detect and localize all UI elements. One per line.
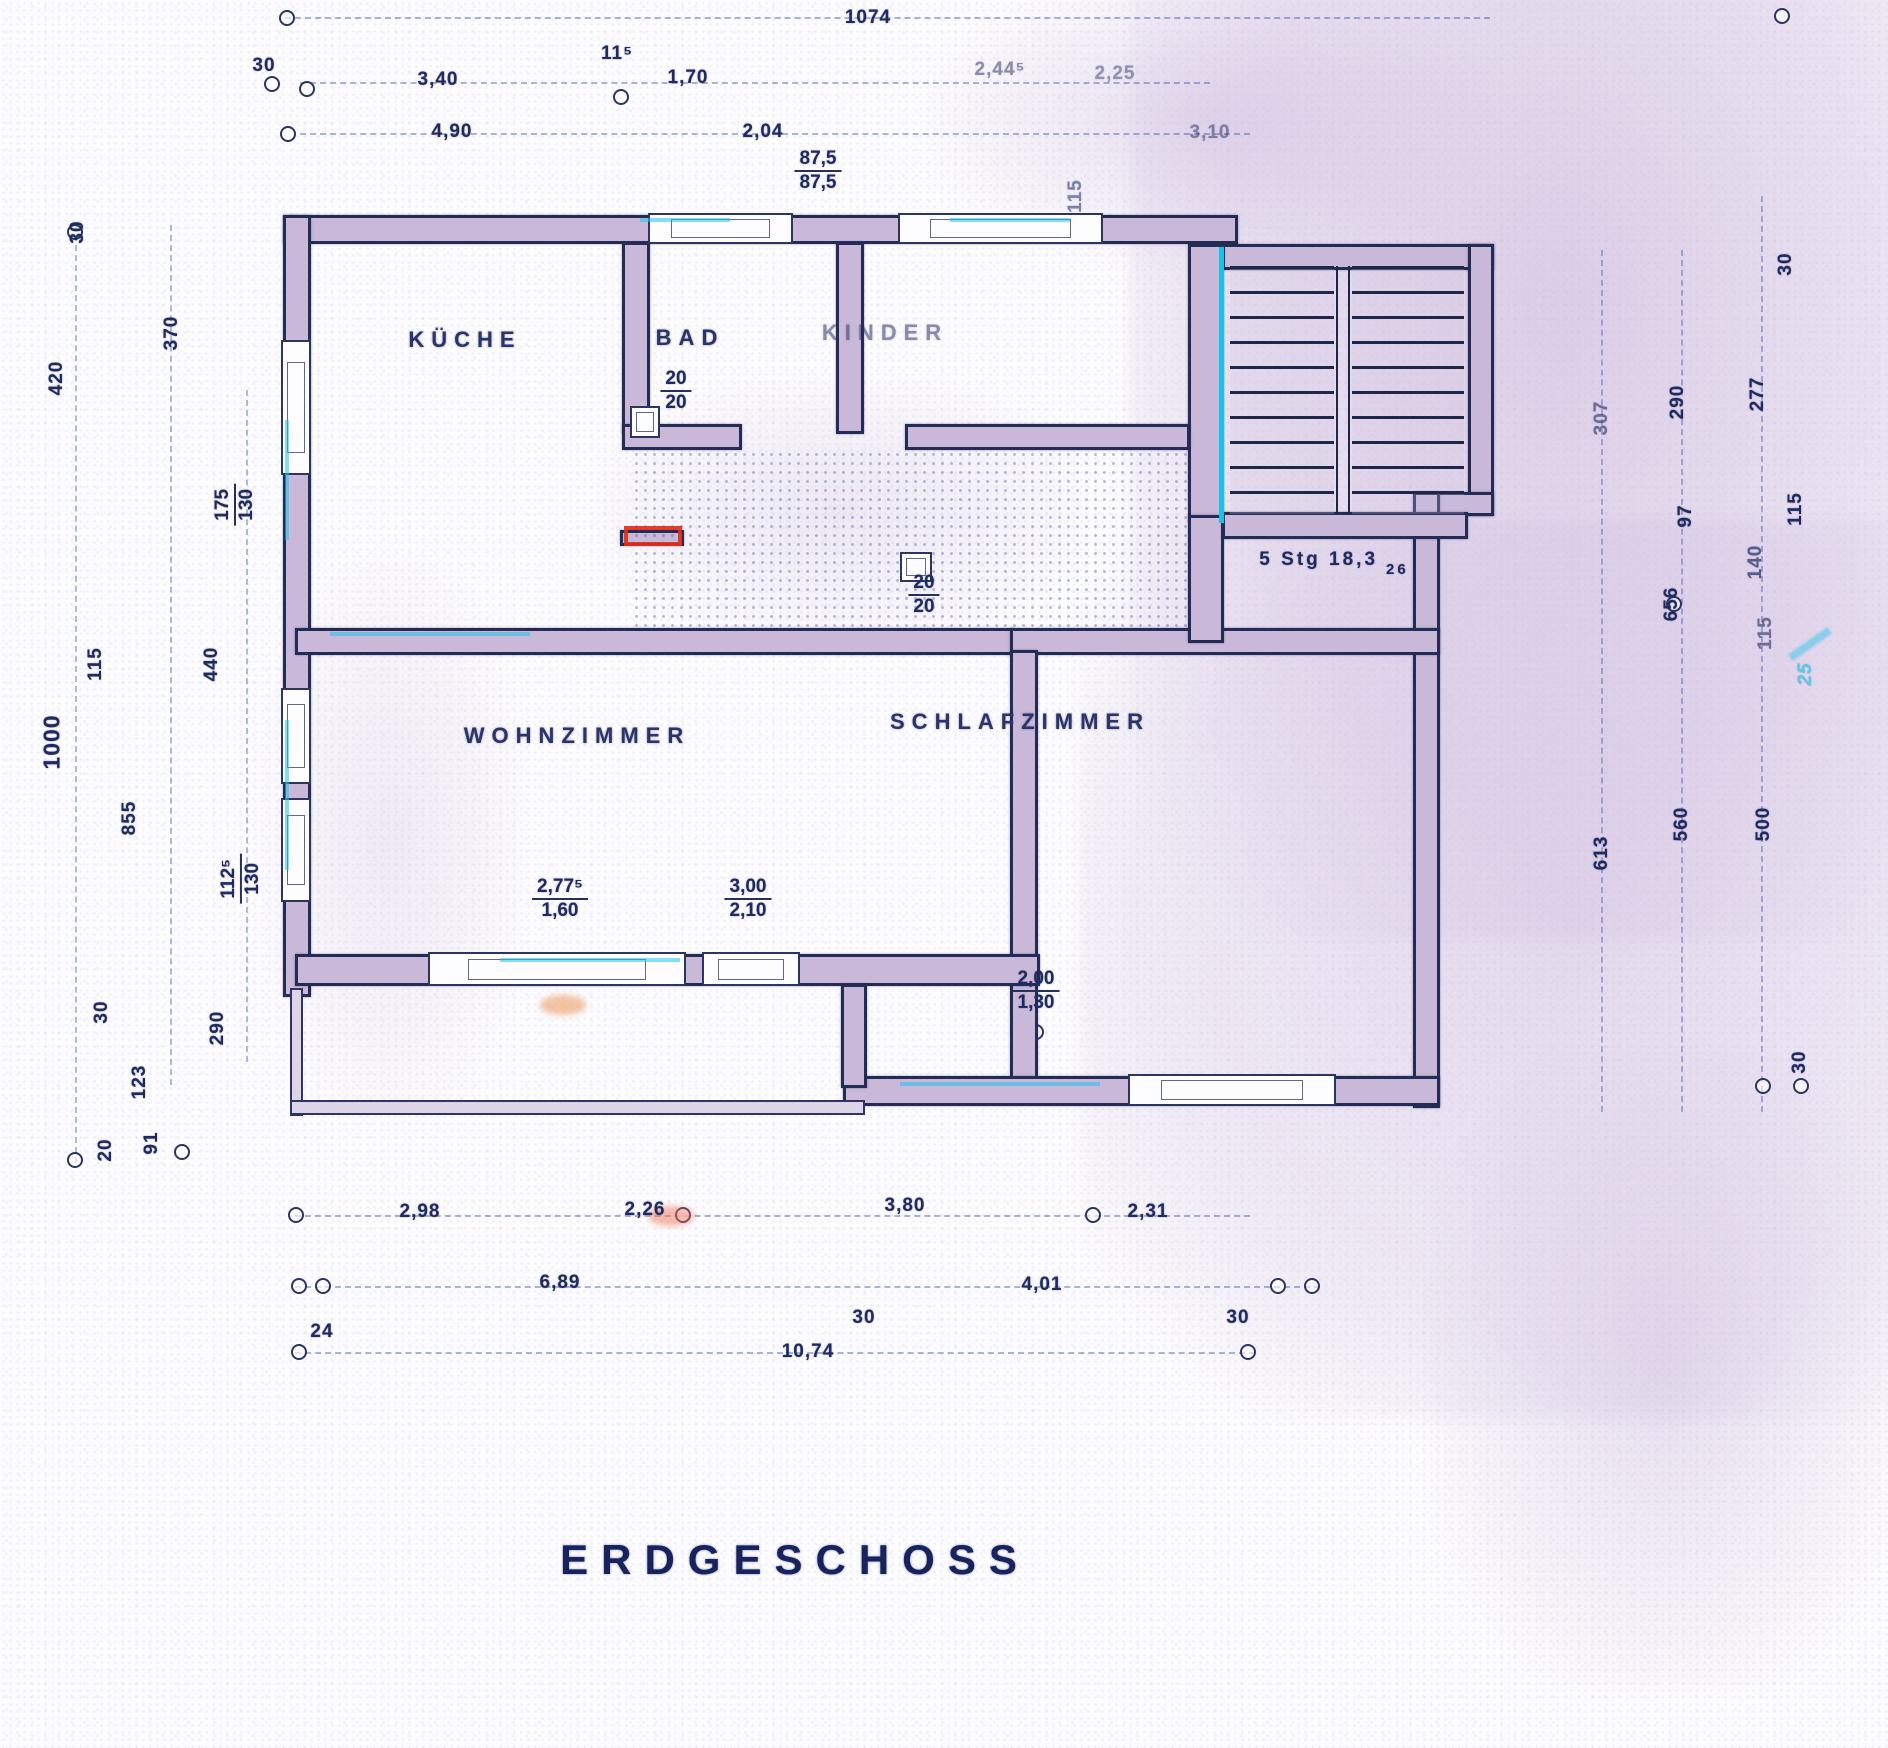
- window-dim-fraction: 87,5 87,5: [795, 148, 842, 194]
- dim-label: 2,31: [1128, 1201, 1169, 1223]
- wall-segment: [290, 988, 303, 1116]
- dim-label: 140: [1745, 545, 1767, 580]
- dim-label: 560: [1671, 807, 1693, 842]
- dim-label: 123: [129, 1065, 151, 1100]
- dim-label: 290: [207, 1011, 229, 1046]
- cyan-scan-streak: [950, 218, 1070, 222]
- cyan-scribble-note: [1788, 627, 1832, 661]
- dim-value: 2,10: [725, 900, 772, 922]
- page-title: ERDGESCHOSS: [560, 1536, 1030, 1584]
- dim-value: 20: [908, 596, 939, 618]
- axis-circle-marker: [291, 1278, 307, 1294]
- dimension-line: [1601, 250, 1603, 1112]
- dimension-line: [295, 1286, 1320, 1288]
- wall-segment: [1222, 512, 1468, 539]
- dim-label: 3,10: [1190, 122, 1231, 144]
- dim-label: 855: [119, 801, 141, 836]
- dim-label: 6,89: [540, 1272, 581, 1294]
- dim-label: 1,70: [668, 67, 709, 89]
- dim-label: 656: [1661, 587, 1683, 622]
- axis-circle-marker: [1240, 1344, 1256, 1360]
- stair-tread-value: 26: [1386, 561, 1409, 578]
- dim-label: 91: [141, 1131, 163, 1154]
- wall-segment: [1010, 628, 1440, 655]
- axis-circle-marker: [1793, 1078, 1809, 1094]
- dim-value: 87,5: [795, 172, 842, 194]
- dim-label: 4,90: [432, 121, 473, 143]
- dim-value: 1,30: [1013, 992, 1060, 1014]
- handwritten-note: 25: [1795, 662, 1817, 685]
- fixture-square: [630, 406, 660, 438]
- axis-circle-marker: [279, 10, 295, 26]
- dim-label: 115: [1065, 179, 1087, 213]
- dim-label: 613: [1591, 836, 1613, 871]
- window-dim-fraction: 2,00 1,30: [1013, 968, 1060, 1014]
- axis-circle-marker: [174, 1144, 190, 1160]
- dim-label: 24: [310, 1321, 333, 1343]
- dim-label: 30: [1226, 1307, 1249, 1329]
- cyan-scan-streak: [1219, 247, 1224, 523]
- cyan-scan-streak: [640, 218, 730, 222]
- axis-circle-marker: [299, 81, 315, 97]
- dim-label: 3,40: [418, 69, 459, 91]
- axis-circle-marker: [1270, 1278, 1286, 1294]
- stair-label: 5 Stg 18,3: [1259, 549, 1378, 570]
- dim-value: 3,00: [725, 876, 772, 900]
- axis-circle-marker: [1304, 1278, 1320, 1294]
- dim-value: 175: [212, 484, 236, 526]
- dim-bottom-total: 10,74: [782, 1341, 835, 1363]
- dim-label: 370: [161, 316, 183, 351]
- window-opening: [702, 952, 800, 986]
- dim-value: 112⁵: [218, 854, 242, 904]
- wall-segment: [290, 1100, 865, 1115]
- axis-circle-marker: [1755, 1078, 1771, 1094]
- terrace-dim-fraction: 2,77⁵ 1,60: [532, 876, 588, 922]
- dim-label: 500: [1753, 807, 1775, 842]
- door-dim-fraction: 20 20: [908, 572, 939, 618]
- scan-stain: [1430, 1050, 1888, 1690]
- axis-circle-marker: [288, 1207, 304, 1223]
- dim-label: 115: [1785, 492, 1807, 526]
- dim-label: 1000: [39, 714, 66, 769]
- stair-flight: [1230, 266, 1334, 514]
- dim-value: 130: [242, 854, 264, 904]
- dim-label: 115: [1755, 616, 1777, 650]
- axis-circle-marker: [1774, 8, 1790, 24]
- dim-label: 30: [1775, 252, 1797, 275]
- stair-flight: [1352, 266, 1464, 514]
- cyan-scan-streak: [330, 632, 530, 636]
- cyan-scan-streak: [500, 958, 680, 962]
- dimension-line: [1761, 196, 1763, 1112]
- red-highlight-marker: [624, 526, 682, 546]
- cyan-scan-streak: [285, 720, 289, 870]
- window-opening: [1128, 1074, 1336, 1106]
- cyan-scan-streak: [285, 420, 289, 540]
- dim-label: 2,26: [625, 1199, 666, 1221]
- axis-circle-marker: [291, 1344, 307, 1360]
- stair-annotation: 5 Stg 18,326: [1259, 549, 1400, 571]
- dim-label: 440: [201, 647, 223, 682]
- room-label-kitchen: KÜCHE: [408, 327, 521, 353]
- dim-label: 307: [1591, 401, 1613, 436]
- dim-label: 11⁵: [601, 43, 633, 65]
- dim-value: 87,5: [795, 148, 842, 172]
- dim-value: 130: [236, 484, 258, 526]
- dim-label: 2,04: [743, 121, 784, 143]
- dim-label: 115: [85, 647, 107, 681]
- axis-circle-marker: [315, 1278, 331, 1294]
- dimension-line: [75, 225, 77, 1163]
- orange-smudge: [540, 995, 586, 1015]
- dim-label: 277: [1747, 377, 1769, 412]
- wall-segment: [905, 424, 1190, 450]
- dim-label: 30: [1789, 1050, 1811, 1073]
- scan-stain: [1080, 520, 1888, 1420]
- window-dim-fraction: 112⁵ 130: [218, 854, 264, 904]
- scanned-floorplan-page: 1074 30 3,40 11⁵ 1,70 2,44⁵ 2,25 4,90 2,…: [0, 0, 1888, 1748]
- wall-segment: [841, 984, 867, 1088]
- axis-circle-marker: [280, 126, 296, 142]
- dim-value: 1,60: [532, 900, 588, 922]
- room-label-bath: BAD: [656, 325, 725, 351]
- dim-label: 2,25: [1095, 63, 1136, 85]
- dim-label: 2,98: [400, 1201, 441, 1223]
- room-label-children: KINDER: [822, 320, 948, 346]
- wall-segment: [1468, 244, 1494, 516]
- stair-stringer: [1336, 266, 1350, 514]
- room-label-living: WOHNZIMMER: [464, 723, 690, 749]
- axis-circle-marker: [264, 76, 280, 92]
- axis-circle-marker: [1085, 1207, 1101, 1223]
- dim-label: 2,44⁵: [975, 59, 1026, 81]
- window-dim-fraction: 175 130: [212, 484, 258, 526]
- dim-label: 20: [95, 1138, 117, 1161]
- axis-circle-marker: [67, 1152, 83, 1168]
- dim-value: 20: [908, 572, 939, 596]
- terrace-dim-fraction: 3,00 2,10: [725, 876, 772, 922]
- dim-label: 30: [852, 1307, 875, 1329]
- dimension-line: [295, 1352, 1255, 1354]
- dim-label: 30: [91, 1000, 113, 1023]
- dim-label: 30: [252, 55, 275, 77]
- dim-top-total: 1074: [845, 7, 891, 29]
- dim-label: 30: [67, 220, 89, 243]
- dimension-line: [170, 225, 172, 1085]
- wall-segment: [1413, 492, 1440, 1108]
- dim-value: 20: [660, 392, 691, 414]
- wall-segment: [1188, 515, 1224, 643]
- door-dim-fraction: 20 20: [660, 368, 691, 414]
- dim-label: 290: [1667, 385, 1689, 420]
- dim-label: 420: [46, 361, 68, 396]
- room-label-bedroom: SCHLAFZIMMER: [890, 709, 1150, 735]
- axis-circle-marker: [613, 89, 629, 105]
- dim-value: 2,77⁵: [532, 876, 588, 900]
- dim-label: 97: [1675, 504, 1697, 527]
- dim-label: 4,01: [1022, 1274, 1063, 1296]
- dimension-line: [1681, 250, 1683, 1112]
- dim-label: 3,80: [885, 1195, 926, 1217]
- dim-value: 2,00: [1013, 968, 1060, 992]
- cyan-scan-streak: [900, 1082, 1100, 1086]
- dim-value: 20: [660, 368, 691, 392]
